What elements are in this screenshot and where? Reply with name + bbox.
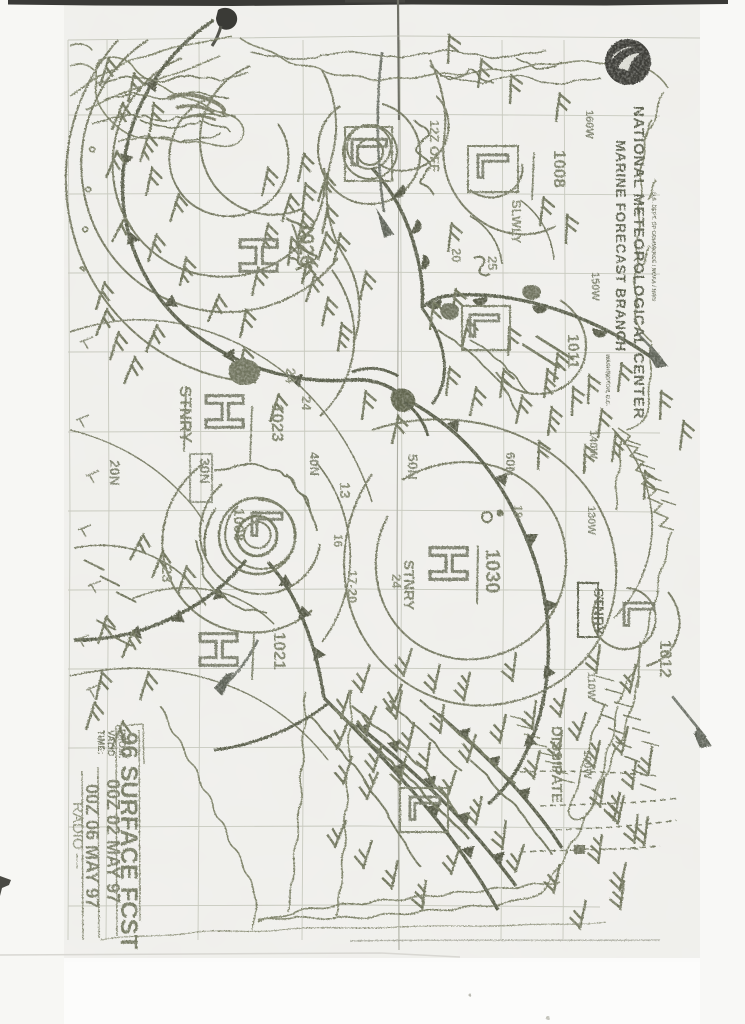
svg-text:1012: 1012: [656, 640, 675, 678]
svg-text:160W: 160W: [583, 110, 595, 139]
svg-text:30N: 30N: [197, 458, 213, 484]
svg-text:1023: 1023: [268, 404, 287, 442]
svg-text:60N: 60N: [503, 452, 518, 476]
svg-text:1021: 1021: [270, 632, 289, 670]
svg-text:NATIONAL METEOROLOGICAL CENTER: NATIONAL METEOROLOGICAL CENTER: [630, 106, 647, 419]
svg-text:24: 24: [283, 368, 299, 384]
svg-text:H: H: [418, 544, 478, 583]
svg-text:L: L: [341, 136, 397, 167]
svg-text:150W: 150W: [589, 272, 601, 301]
svg-text:140W: 140W: [587, 430, 599, 459]
svg-text:110W: 110W: [585, 672, 597, 701]
svg-text:MARINE FORECAST BRANCH: MARINE FORECAST BRANCH: [613, 140, 629, 352]
svg-text:18: 18: [511, 505, 525, 519]
svg-text:VALID: VALID: [106, 730, 116, 757]
svg-text:1008: 1008: [550, 150, 569, 188]
svg-text:24: 24: [299, 396, 314, 411]
svg-text:1008: 1008: [230, 508, 247, 541]
svg-text:100W: 100W: [581, 750, 593, 779]
svg-text:23: 23: [158, 566, 175, 583]
svg-text:TIME:: TIME:: [96, 730, 106, 755]
svg-text:SLWLY: SLWLY: [509, 200, 524, 244]
svg-text:20: 20: [449, 248, 464, 262]
svg-text:25: 25: [485, 256, 500, 270]
svg-text:L: L: [614, 600, 663, 627]
svg-text:1030: 1030: [481, 549, 503, 594]
svg-text:L: L: [242, 510, 291, 537]
svg-text:DISSIPATE: DISSIPATE: [548, 726, 565, 803]
svg-text:H: H: [194, 392, 254, 431]
svg-text:L: L: [400, 794, 449, 821]
svg-text:20N: 20N: [107, 460, 123, 486]
svg-text:16: 16: [331, 534, 345, 548]
svg-text:L: L: [461, 312, 508, 338]
svg-text:1011: 1011: [564, 334, 581, 369]
svg-text:17-20: 17-20: [345, 570, 360, 603]
svg-text:00Z 02 MAY 97: 00Z 02 MAY 97: [103, 779, 123, 903]
svg-text:U.S. DEPT. OF COMMERCE / NOAA: U.S. DEPT. OF COMMERCE / NOAA / NWS: [650, 192, 656, 302]
svg-text:L: L: [468, 152, 517, 179]
svg-text:50N: 50N: [405, 454, 421, 480]
svg-text:WASHINGTON, D.C.: WASHINGTON, D.C.: [604, 354, 610, 406]
svg-text:40N: 40N: [307, 452, 322, 476]
svg-text:RADIO —: RADIO —: [69, 802, 86, 869]
svg-text:130W: 130W: [585, 506, 597, 535]
svg-text:FROM:: FROM:: [117, 729, 127, 759]
svg-text:H: H: [228, 236, 288, 275]
svg-text:24: 24: [389, 574, 404, 589]
svg-text:13: 13: [336, 482, 353, 499]
svg-text:H: H: [188, 630, 248, 669]
